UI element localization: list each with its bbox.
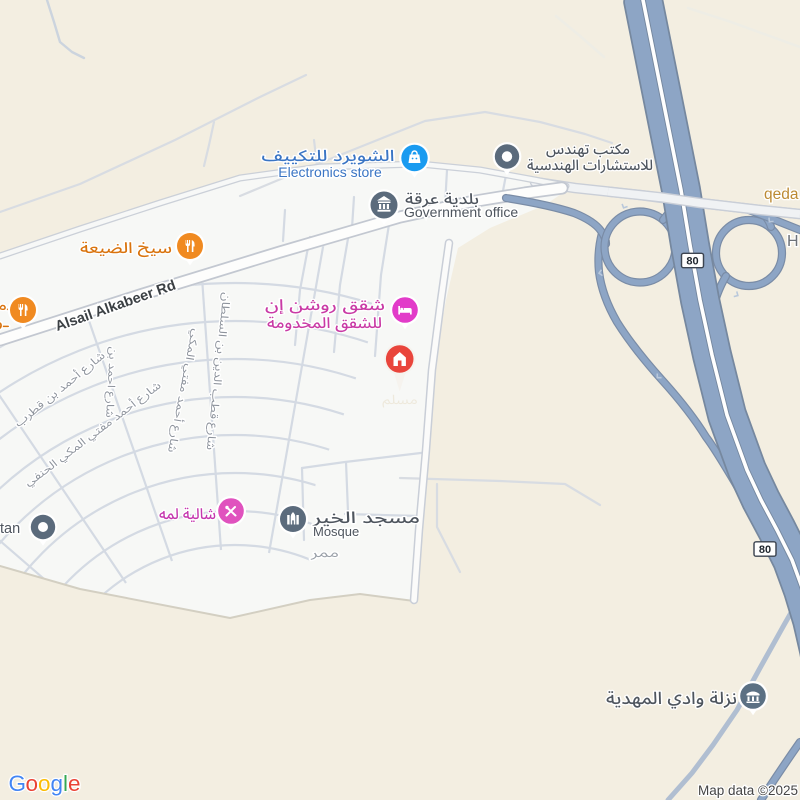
- svg-text:H: H: [787, 233, 799, 250]
- svg-text:G: G: [9, 771, 26, 796]
- svg-text:o: o: [38, 771, 50, 796]
- svg-text:Mosque: Mosque: [313, 524, 359, 539]
- svg-text:e: e: [68, 771, 80, 796]
- svg-text:Electronics store: Electronics store: [278, 164, 382, 180]
- svg-text:80: 80: [759, 544, 771, 556]
- svg-text:Government office: Government office: [404, 204, 518, 220]
- svg-text:l: l: [63, 771, 68, 796]
- svg-text:o: o: [26, 771, 38, 796]
- svg-text:g: g: [51, 771, 63, 796]
- svg-text:qeda: qeda: [764, 186, 799, 203]
- svg-text:80: 80: [686, 256, 698, 268]
- svg-text:Map data ©2025: Map data ©2025: [698, 783, 798, 798]
- svg-text:tan: tan: [0, 521, 20, 537]
